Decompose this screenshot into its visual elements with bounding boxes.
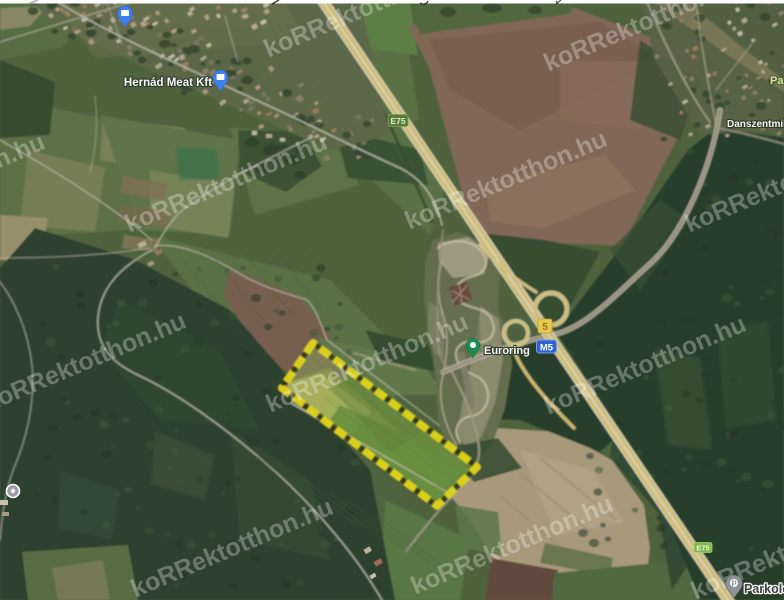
svg-text:Danszentmikló: Danszentmikló [727, 119, 784, 130]
svg-text:P: P [731, 579, 737, 588]
svg-text:Hernád Meat Kft: Hernád Meat Kft [124, 77, 212, 89]
svg-text:E75: E75 [390, 116, 405, 126]
svg-text:Parkoló: Parkoló [744, 582, 784, 596]
svg-text:M5: M5 [540, 343, 554, 354]
svg-text:Euroring: Euroring [484, 345, 530, 357]
svg-text:E75: E75 [696, 544, 709, 553]
svg-text:5: 5 [542, 322, 548, 333]
svg-text:Pa: Pa [770, 75, 784, 87]
